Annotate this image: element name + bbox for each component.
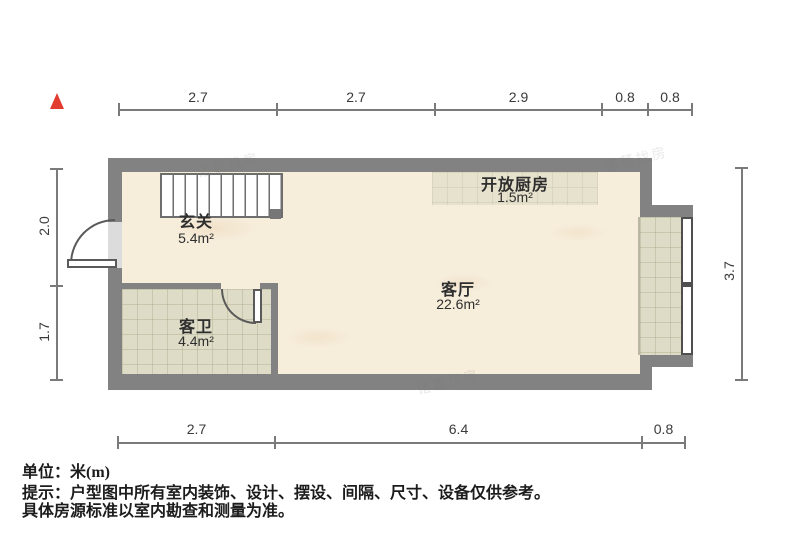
dim-line-left [56, 169, 58, 380]
dim-line-top [119, 109, 692, 111]
wall-left-lower [108, 268, 122, 390]
bathroom-door-leaf [253, 289, 262, 323]
entry-door-leaf [67, 259, 117, 268]
dim-right-1: 3.7 [721, 241, 737, 301]
dim-left-2: 1.7 [36, 302, 52, 362]
dim-tick [684, 436, 686, 449]
dim-tick [50, 168, 63, 170]
dim-bottom-3: 0.8 [642, 421, 685, 437]
wall-bottom [108, 374, 652, 390]
dim-top-3: 2.9 [435, 89, 602, 105]
room-area-kitchen: 1.5m² [455, 189, 575, 205]
wall-right-step [640, 355, 652, 390]
bathroom-wall-right [271, 283, 278, 374]
bay-window [681, 217, 693, 355]
dim-tick [735, 167, 748, 169]
dim-tick [50, 379, 63, 381]
floor-plan-canvas: 玄关 5.4m² 客卫 4.4m² 客厅 22.6m² 开放厨房 1.5m² 2… [0, 0, 800, 551]
dim-line-bottom [118, 442, 685, 444]
entry-door-arc [70, 219, 115, 264]
room-name-entry: 玄关 [156, 208, 236, 232]
room-area-bathroom: 4.4m² [156, 333, 236, 349]
wall-top [108, 158, 652, 172]
dim-bottom-1: 2.7 [118, 421, 275, 437]
dim-left-1: 2.0 [36, 196, 52, 256]
dim-top-1: 2.7 [119, 89, 277, 105]
dim-tick [117, 436, 119, 449]
tip-note-line2: 具体房源标准以室内勘查和测量为准。 [22, 497, 294, 521]
stair-post [270, 209, 281, 219]
room-area-living: 22.6m² [418, 296, 498, 312]
bathroom-wall-top-left [122, 283, 221, 289]
north-arrow-icon [50, 93, 64, 109]
bay-window-divider [683, 282, 691, 287]
dim-top-5: 0.8 [648, 89, 692, 105]
wall-bay-top [640, 205, 693, 217]
dim-tick [641, 436, 643, 449]
dim-top-4: 0.8 [602, 89, 648, 105]
dim-tick [274, 436, 276, 449]
dim-tick [735, 379, 748, 381]
wall-left-upper [108, 158, 122, 222]
dim-top-2: 2.7 [277, 89, 435, 105]
dim-bottom-2: 6.4 [275, 421, 642, 437]
dim-line-right [741, 168, 743, 380]
dim-tick [50, 285, 63, 287]
bay-window-floor [640, 217, 681, 355]
bay-floor-boundary [638, 217, 640, 355]
room-area-entry: 5.4m² [156, 230, 236, 246]
